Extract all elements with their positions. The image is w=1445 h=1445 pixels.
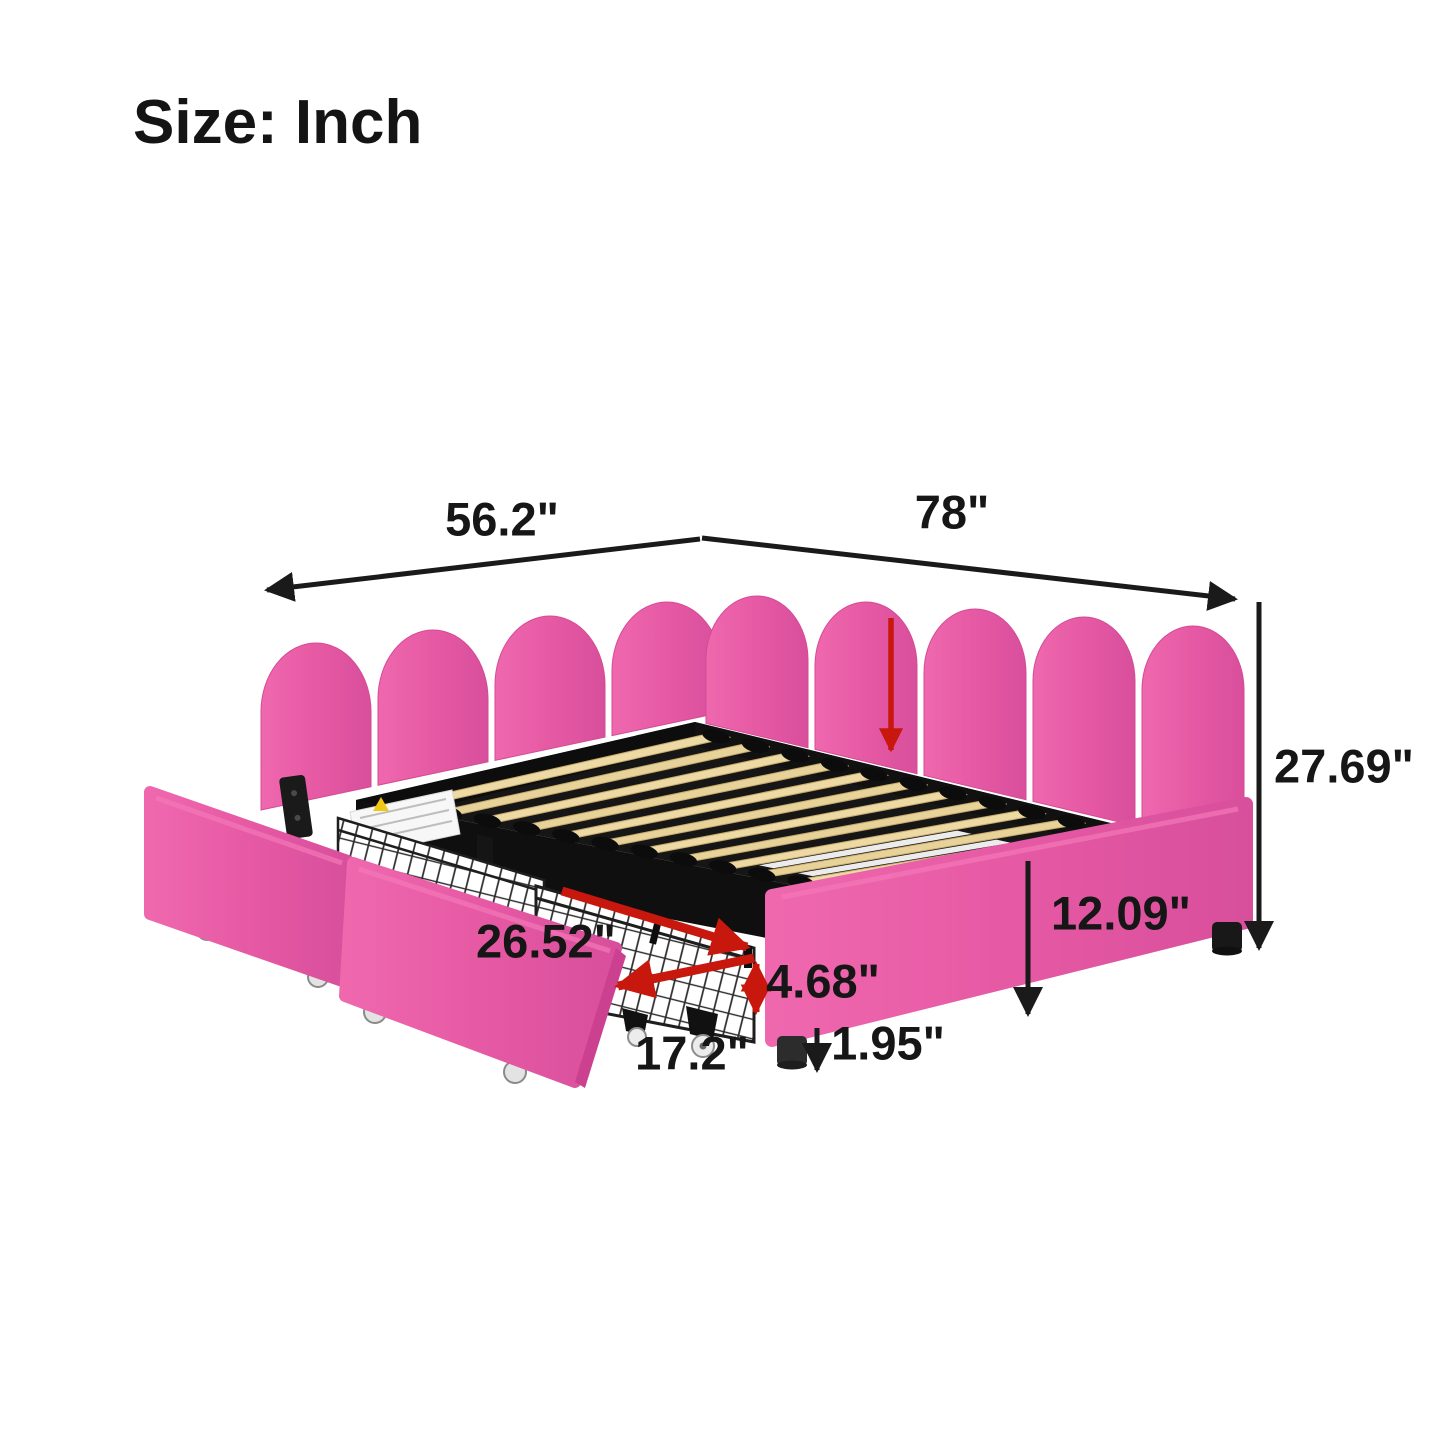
headboard-arch-panel — [378, 630, 488, 785]
headboard-arch-panel — [261, 643, 371, 810]
bed-length-arrow — [702, 538, 1235, 599]
headboard-width-label: 56.2" — [445, 496, 559, 543]
bed-illustration — [0, 0, 1445, 1445]
total-height-label: 27.69" — [1274, 743, 1414, 790]
drawer-length-label: 26.52" — [476, 918, 616, 965]
size-unit-title: Size: Inch — [133, 92, 422, 154]
product-dimension-diagram: Size: Inch 56.2" 78" 27.69" 12.09" 26.52… — [0, 0, 1445, 1445]
leg-height-label: 1.95" — [831, 1020, 945, 1067]
headboard-arch-panel — [1033, 617, 1135, 826]
headboard-arch-panel — [815, 602, 917, 774]
headboard-arch-panel — [495, 616, 605, 760]
drawer-width-label: 17.2" — [635, 1030, 749, 1077]
bed-length-label: 78" — [915, 489, 990, 536]
drawer-panel-left — [150, 792, 348, 983]
headboard-arch-panel — [706, 596, 808, 748]
headboard-width-arrow — [267, 539, 700, 590]
drawer-height-label: 4.68" — [766, 958, 880, 1005]
rail-height-label: 12.09" — [1051, 890, 1191, 937]
headboard-arch-panel — [924, 609, 1026, 800]
